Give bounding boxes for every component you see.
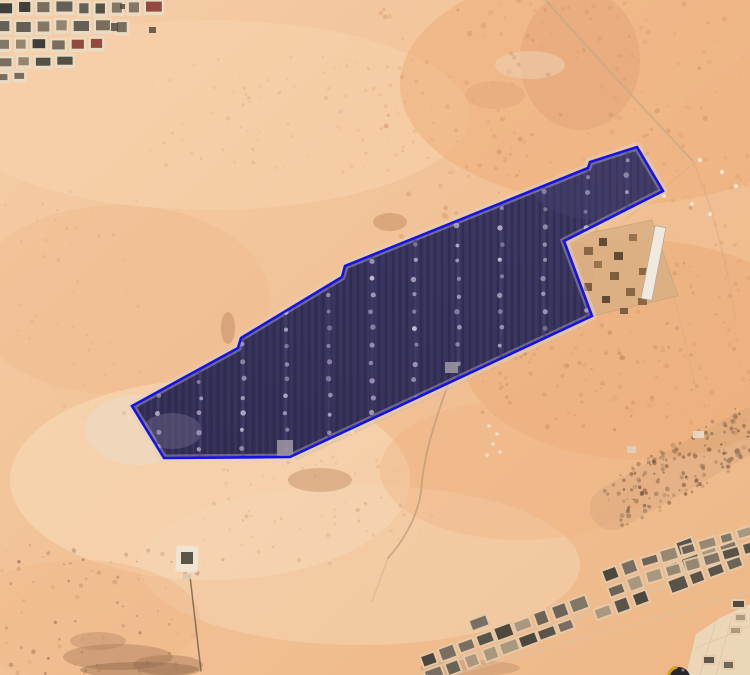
equipment-unit [610,272,619,280]
equipment-unit [620,308,628,314]
equipment-unit [614,252,623,260]
small-building [149,27,156,33]
satellite-imagery-layer [0,0,750,675]
building [693,431,704,438]
small-building [120,4,125,9]
sand-wash [221,312,235,344]
vegetation-shadow-blob [70,632,126,650]
equipment-unit [602,296,610,303]
sand-wash [288,468,352,492]
equipment-unit [626,288,635,296]
sand-wash [465,81,525,109]
building [627,446,636,453]
equipment-unit [594,261,602,268]
equipment-unit [584,247,593,255]
inverter-station-building [445,362,458,373]
equipment-unit [629,234,637,241]
satellite-map-view[interactable] [0,0,750,675]
equipment-unit [599,238,607,246]
sand-wash [373,213,407,231]
small-building [111,23,118,31]
sand-wash [495,51,565,79]
